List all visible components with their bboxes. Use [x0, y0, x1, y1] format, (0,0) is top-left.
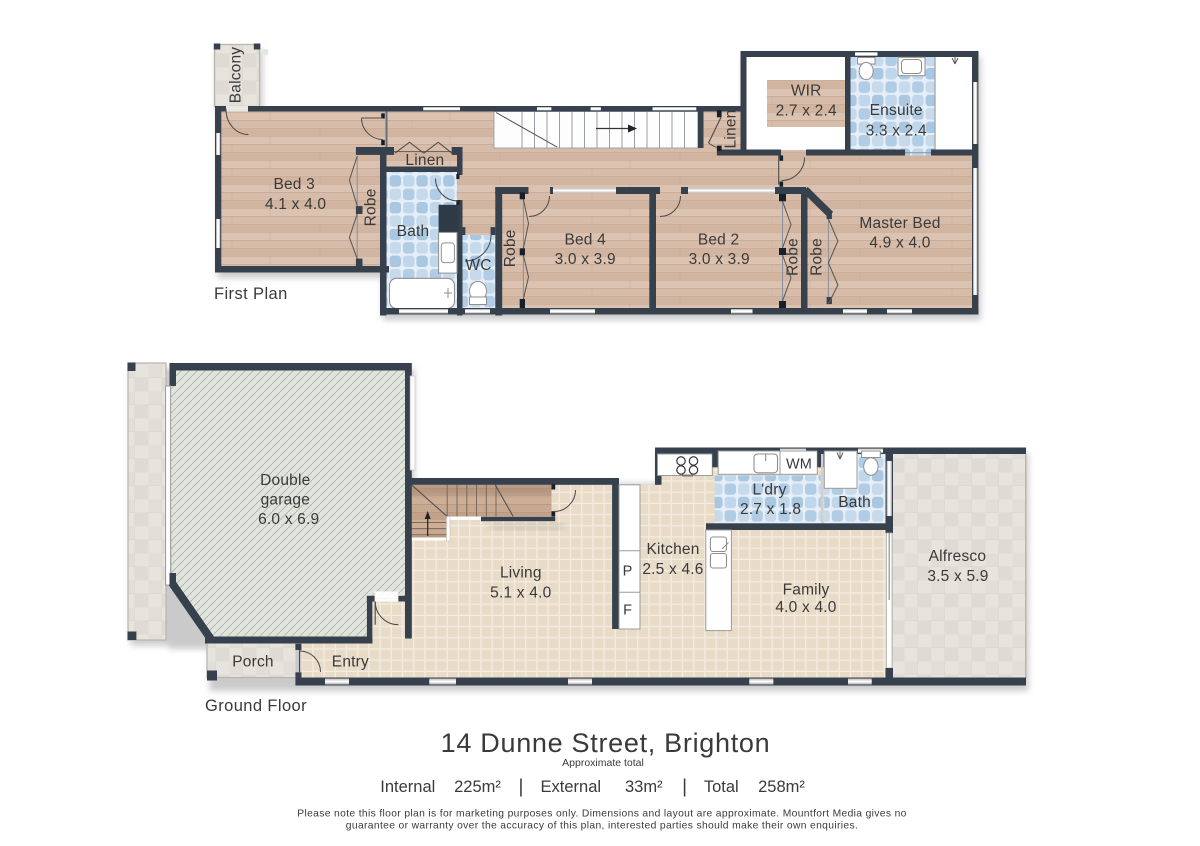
svg-text:Robe: Robe	[502, 229, 519, 267]
svg-text:Ground Floor: Ground Floor	[205, 697, 307, 715]
svg-text:Bed 3: Bed 3	[273, 176, 315, 193]
svg-text:2.7 x 2.4: 2.7 x 2.4	[776, 103, 837, 120]
svg-text:4.9 x 4.0: 4.9 x 4.0	[869, 235, 930, 252]
svg-text:Total: Total	[704, 778, 739, 796]
svg-text:guarantee or warranty over the: guarantee or warranty over the accuracy …	[346, 821, 858, 832]
svg-text:Porch: Porch	[232, 654, 274, 671]
svg-text:2.7 x 1.8: 2.7 x 1.8	[740, 501, 801, 518]
svg-text:|: |	[682, 777, 687, 798]
svg-text:Ensuite: Ensuite	[870, 102, 923, 119]
svg-text:3.5 x 5.9: 3.5 x 5.9	[927, 568, 988, 585]
svg-text:Living: Living	[500, 564, 542, 581]
svg-text:F: F	[623, 603, 632, 619]
svg-text:5.1 x 4.0: 5.1 x 4.0	[490, 584, 551, 601]
svg-text:Please note this floor plan is: Please note this floor plan is for marke…	[297, 809, 906, 820]
svg-text:Balcony: Balcony	[228, 47, 245, 104]
svg-text:14 Dunne Street, Brighton: 14 Dunne Street, Brighton	[441, 728, 771, 758]
svg-text:Robe: Robe	[785, 238, 802, 276]
svg-text:Master Bed: Master Bed	[859, 215, 940, 232]
svg-text:WIR: WIR	[791, 83, 822, 100]
svg-text:3.3 x 2.4: 3.3 x 2.4	[866, 123, 927, 140]
svg-text:Robe: Robe	[363, 188, 380, 226]
svg-text:External: External	[541, 778, 602, 796]
svg-text:Entry: Entry	[332, 654, 369, 671]
svg-text:33m²: 33m²	[625, 778, 663, 796]
svg-text:Internal: Internal	[380, 778, 435, 796]
svg-text:Bath: Bath	[397, 223, 430, 240]
svg-text:Robe: Robe	[809, 238, 826, 276]
svg-text:225m²: 225m²	[454, 778, 501, 796]
svg-text:Kitchen: Kitchen	[646, 541, 699, 558]
svg-text:4.0 x 4.0: 4.0 x 4.0	[775, 599, 836, 616]
svg-text:Alfresco: Alfresco	[929, 548, 987, 565]
svg-text:Linen: Linen	[723, 110, 740, 149]
svg-text:258m²: 258m²	[758, 778, 805, 796]
svg-text:Family: Family	[783, 582, 830, 599]
svg-text:Bath: Bath	[838, 494, 871, 511]
svg-text:WM: WM	[786, 457, 812, 473]
svg-text:Bed 2: Bed 2	[698, 232, 740, 249]
svg-text:2.5 x 4.6: 2.5 x 4.6	[642, 561, 703, 578]
svg-text:6.0 x 6.9: 6.0 x 6.9	[258, 511, 319, 528]
svg-text:First Plan: First Plan	[214, 285, 288, 303]
svg-text:|: |	[519, 777, 524, 798]
svg-text:P: P	[623, 564, 633, 580]
svg-text:garage: garage	[261, 492, 310, 509]
svg-text:Bed 4: Bed 4	[564, 232, 606, 249]
svg-text:Double: Double	[260, 472, 310, 489]
svg-text:Linen: Linen	[405, 152, 444, 169]
svg-text:3.0 x 3.9: 3.0 x 3.9	[555, 251, 616, 268]
svg-text:L'dry: L'dry	[752, 482, 786, 499]
svg-text:4.1 x 4.0: 4.1 x 4.0	[265, 196, 326, 213]
svg-text:WC: WC	[465, 257, 491, 274]
svg-text:Approximate total: Approximate total	[562, 757, 644, 769]
svg-text:3.0 x 3.9: 3.0 x 3.9	[689, 251, 750, 268]
